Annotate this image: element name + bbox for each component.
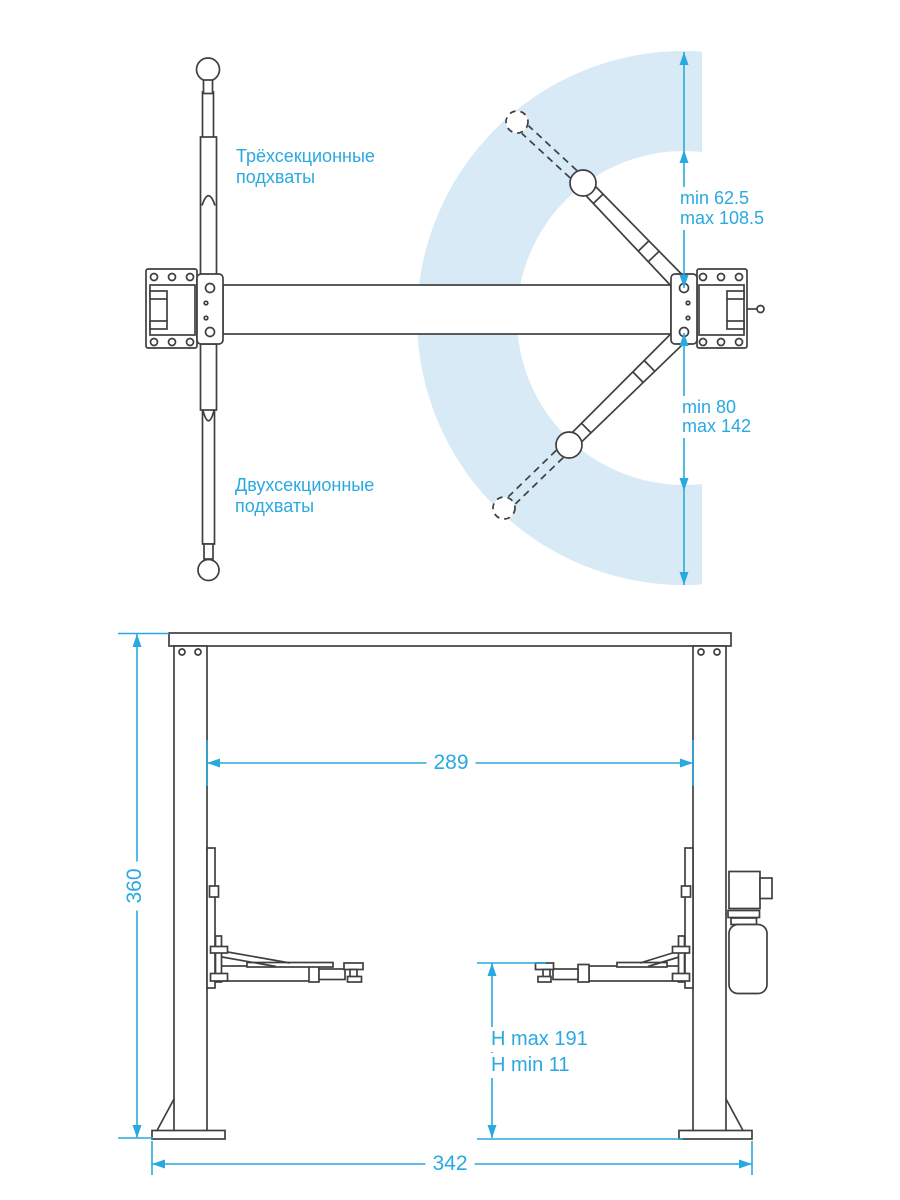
left-lift-arm [211, 936, 364, 982]
arm-ball-pad-top [197, 58, 220, 81]
dim-text-overall-height: 360 [123, 861, 147, 910]
three-section-arm [197, 58, 220, 276]
left-carriage-rail [207, 848, 215, 988]
dim-text-upper-arm-max: max 108.5 [677, 207, 767, 230]
left-carriage [197, 274, 223, 344]
two-section-arm [198, 344, 219, 581]
right-carriage-rail [685, 848, 693, 988]
motor-box [729, 872, 760, 909]
oil-reservoir [729, 925, 767, 994]
dim-text-clearance-width: 289 [426, 751, 475, 775]
dim-text-lift-height-min: H min 11 [487, 1053, 574, 1078]
lower-arm-pad-extended [493, 497, 515, 519]
label-two-section-arms-line2: подхваты [235, 496, 314, 517]
right-mounting-plate [697, 269, 764, 348]
dim-text-overall-width: 342 [425, 1152, 474, 1176]
lower-arm-joint [556, 432, 582, 458]
top-crossbar [169, 633, 731, 646]
upper-arm-joint [570, 170, 596, 196]
carriage-beam [223, 285, 671, 334]
arm-ball-pad-bottom [198, 560, 219, 581]
left-mounting-plate [146, 269, 197, 348]
right-lift-arm [536, 936, 690, 982]
label-three-section-arms-line1: Трёхсекционные [236, 146, 375, 167]
drawing-canvas [0, 0, 900, 1200]
front-view [118, 633, 772, 1175]
base-plates [152, 1099, 752, 1139]
dim-text-lower-arm-max: max 142 [679, 415, 754, 438]
label-three-section-arms-line2: подхваты [236, 167, 315, 188]
dim-text-lift-height-max: H max 191 [487, 1027, 592, 1052]
right-column [693, 646, 726, 1131]
left-column [174, 646, 207, 1131]
power-unit [728, 872, 772, 994]
label-two-section-arms-line1: Двухсекционные [235, 475, 374, 496]
lift-technical-drawing: Трёхсекционные подхваты Двухсекционные п… [0, 0, 900, 1200]
upper-arm-pad-extended [506, 111, 528, 133]
